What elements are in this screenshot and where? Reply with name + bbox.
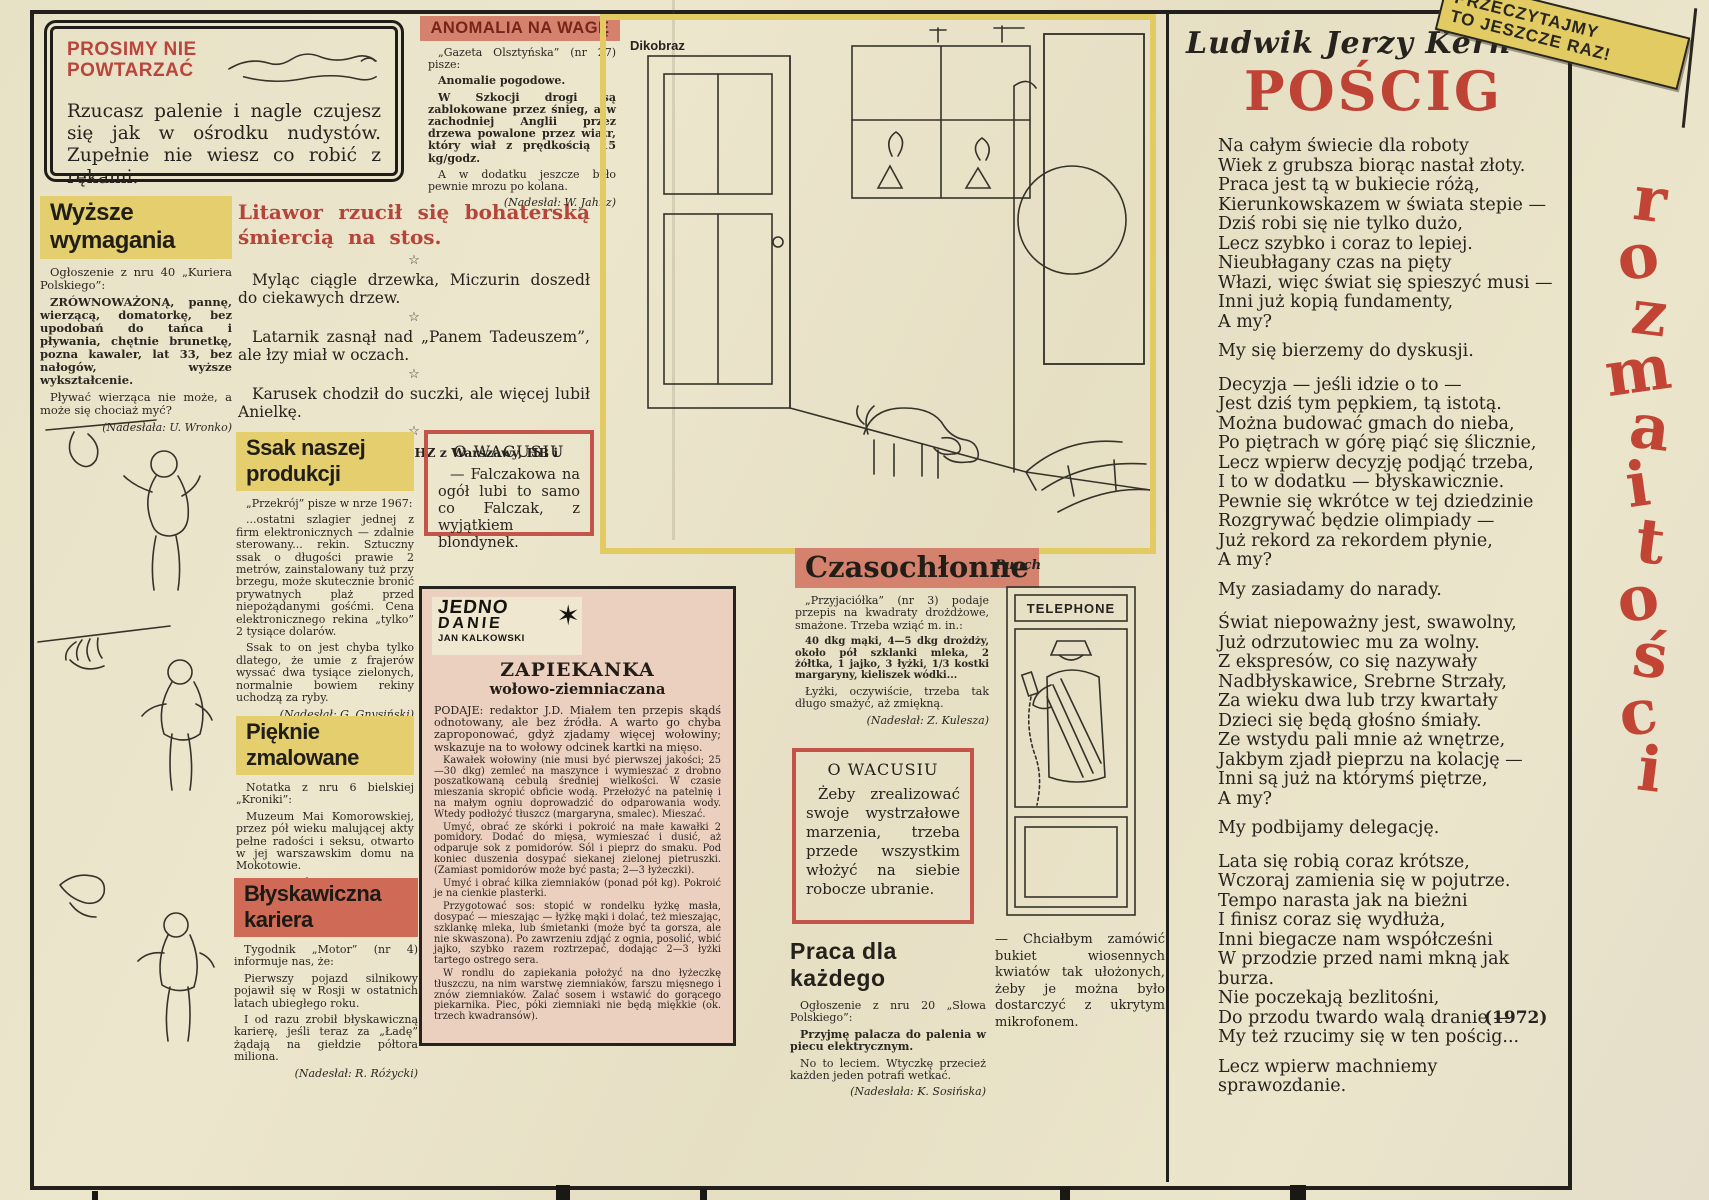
dog-hallway-cartoon [606, 20, 1150, 546]
czasochlonne-credit: (Nadesłał: Z. Kulesza) [795, 715, 989, 727]
ssak-p2: Ssak to on jest chyba tylko dlatego, że … [236, 642, 414, 704]
wacusiu1-title: O WACUSIU [438, 442, 580, 461]
page-title-vertical: rozmaitości [1586, 170, 1702, 797]
phone-booth-cartoon: TELEPHONE [995, 577, 1155, 922]
poem-stanza: Świat niepoważny jest, swawolny,Już odrz… [1218, 614, 1566, 809]
star-separator: ☆ [238, 367, 590, 382]
litawor-joke: Myląc ciągle drzewka, Miczurin doszedł d… [238, 271, 590, 307]
pieknie-heading: Pięknie zmalowane [236, 716, 414, 775]
recipe-p6: W rondlu do zapiekania położyć na dno ły… [434, 969, 721, 1023]
anomalia-credit: (Nadesłał: W. Jahnz) [428, 197, 616, 209]
recipe-p1: PODAJE: redaktor J.D. Miałem ten przepis… [434, 705, 721, 754]
wyzsze-heading: Wyższe wymagania [40, 196, 232, 259]
newspaper-page: PROSIMY NIE POWTARZAĆ Rzucasz palenie i … [0, 0, 1709, 1200]
praca-credit: (Nadesłała: K. Sosińska) [790, 1086, 986, 1098]
czasochlonne-p2: Łyżki, oczywiście, trzeba tak długo smaż… [795, 686, 989, 711]
ssak-intro: „Przekrój” pisze w nrze 1967: [236, 498, 414, 510]
reclining-figure-sketch [224, 39, 381, 89]
punch-cartoon-block: Punch TELEPHONE — Chciałbym zamówić buki… [995, 558, 1165, 1031]
recipe-box: JEDNO DANIE JAN KALKOWSKI ✶ ZAPIEKANKA w… [419, 586, 736, 1046]
cutlery-burst-icon: ✶ [557, 599, 580, 632]
recipe-p2: Kawałek wołowiny (nie musi być pierwszej… [434, 756, 721, 821]
pieknie-intro: Notatka z nru 6 bielskiej „Kroniki”: [236, 782, 414, 807]
recipe-title: ZAPIEKANKA [434, 659, 721, 681]
wyzsze-p1: ZRÓWNOWAŻONĄ, pannę, wierzącą, domatorkę… [40, 296, 232, 387]
recipe-p3: Umyć, obrać ze skórki i pokroić na małe … [434, 823, 721, 877]
poem-refrain: My zasiadamy do narady. [1218, 581, 1566, 601]
anomalia-heading: ANOMALIA NA WAGĘ [420, 16, 620, 41]
blyskawiczna-credit: (Nadesłał: R. Różycki) [234, 1068, 418, 1080]
praca-intro: Ogłoszenie z nru 20 „Słowa Polskiego”: [790, 1000, 986, 1025]
section-ssak: Ssak naszej produkcji „Przekrój” pisze w… [236, 432, 414, 721]
poem-refrain: My się bierzemy do dyskusji. [1218, 342, 1566, 362]
wacusiu-box-1: O WACUSIU — Falczakowa na ogół lubi to s… [424, 430, 594, 536]
blyskawiczna-p1: Pierwszy pojazd silnikowy pojawił się w … [234, 973, 418, 1010]
punch-caption: — Chciałbym zamówić bukiet wiosennych kw… [995, 932, 1165, 1031]
registration-mark [1060, 1187, 1070, 1200]
section-blyskawiczna: Błyskawiczna kariera Tygodnik „Motor” (n… [234, 878, 418, 1080]
recipe-p4: Umyć i obrać kilka ziemniaków (ponad pół… [434, 879, 721, 901]
jedno-danie-logo: JEDNO DANIE JAN KALKOWSKI ✶ [432, 597, 582, 655]
bundle-doodle [30, 612, 230, 832]
wacusiu2-body: Żeby zrealizować swoje wystrzałowe marze… [806, 785, 960, 899]
star-separator: ☆ [238, 253, 590, 268]
blyskawiczna-intro: Tygodnik „Motor” (nr 4) informuje nas, ż… [234, 944, 418, 969]
anomalia-p1: Anomalie pogodowe. [428, 75, 616, 87]
section-anomalia: ANOMALIA NA WAGĘ „Gazeta Olsztyńska” (nr… [420, 16, 620, 209]
wacusiu2-title: O WACUSIU [806, 760, 960, 779]
wyzsze-intro: Ogłoszenie z nru 40 „Kuriera Polskiego”: [40, 266, 232, 292]
anomalia-p2: W Szkocji drogi są zablokowane przez śni… [428, 92, 616, 165]
section-praca: Praca dla każdego Ogłoszenie z nru 20 „S… [790, 938, 986, 1099]
punch-label: Punch [995, 558, 1165, 573]
ssak-p1: ...ostatni szlagier jednej z firm elektr… [236, 514, 414, 638]
recipe-subtitle: wołowo-ziemniaczana [434, 681, 721, 698]
dikobraz-cartoon-frame: Dikobraz [600, 14, 1156, 554]
prosimy-title: PROSIMY NIE POWTARZAĆ [67, 39, 224, 89]
anomalia-p3: A w dodatku jeszcze było pewnie mrozu po… [428, 169, 616, 193]
praca-heading: Praca dla każdego [790, 938, 986, 992]
telephone-sign: TELEPHONE [1027, 601, 1115, 616]
poem-column: Ludwik Jerzy Kern POŚCIG Na całym świeci… [1186, 26, 1566, 1111]
poem-stanza: Decyzja — jeśli idzie o to —Jest dziś ty… [1218, 376, 1566, 571]
poem-refrain: Lecz wpierw machniemy sprawozdanie. [1218, 1058, 1566, 1097]
praca-p2: No to leciem. Wtyczkę przecież każden je… [790, 1058, 986, 1083]
section-wyzsze: Wyższe wymagania Ogłoszenie z nru 40 „Ku… [40, 196, 232, 434]
pieknie-p1: Muzeum Mai Komorowskiej, przez pół wieku… [236, 811, 414, 873]
section-czasochlonne: Czasochłonne „Przyjaciółka” (nr 3) podaj… [795, 548, 989, 727]
czasochlonne-p1: 40 dkg mąki, 4—5 dkg drożdży, około pół … [795, 636, 989, 682]
litawor-joke: Karusek chodził do suczki, ale więcej lu… [238, 385, 590, 421]
sweeper-doodle [40, 845, 230, 1070]
registration-mark [92, 1191, 98, 1200]
blyskawiczna-heading: Błyskawiczna kariera [234, 878, 418, 937]
registration-mark [1290, 1185, 1306, 1200]
blyskawiczna-p2: I od razu zrobił błyskawiczną karierę, j… [234, 1014, 418, 1064]
column-divider-rule [1166, 10, 1169, 1182]
poem-stanza: Na całym świecie dla robotyWiek z grubsz… [1218, 137, 1566, 332]
litawor-joke: Latarnik zasnął nad „Panem Tadeuszem”, a… [238, 328, 590, 364]
registration-mark [556, 1185, 570, 1200]
boxer-doodle [36, 412, 226, 607]
recipe-p5: Przygotować sos: stopić w rondelku łyżkę… [434, 902, 721, 967]
wacusiu-box-2: O WACUSIU Żeby zrealizować swoje wystrza… [792, 748, 974, 924]
prosimy-body: Rzucasz palenie i nagle czujesz się jak … [67, 101, 381, 189]
poem-refrain: My podbijamy delegację. [1218, 819, 1566, 839]
czasochlonne-intro: „Przyjaciółka” (nr 3) podaje przepis na … [795, 595, 989, 632]
ssak-heading: Ssak naszej produkcji [236, 432, 414, 491]
registration-mark [700, 1189, 707, 1200]
prosimy-box: PROSIMY NIE POWTARZAĆ Rzucasz palenie i … [50, 26, 398, 176]
star-separator: ☆ [238, 310, 590, 325]
wacusiu1-body: — Falczakowa na ogół lubi to samo co Fal… [438, 467, 580, 552]
anomalia-intro: „Gazeta Olsztyńska” (nr 27) pisze: [428, 47, 616, 71]
publication-year: (1972) [1484, 1008, 1547, 1028]
banner-mast [1682, 8, 1698, 128]
logo-author-text: JAN KALKOWSKI [438, 633, 576, 644]
praca-p1: Przyjmę palacza do palenia w piecu elekt… [790, 1029, 986, 1054]
